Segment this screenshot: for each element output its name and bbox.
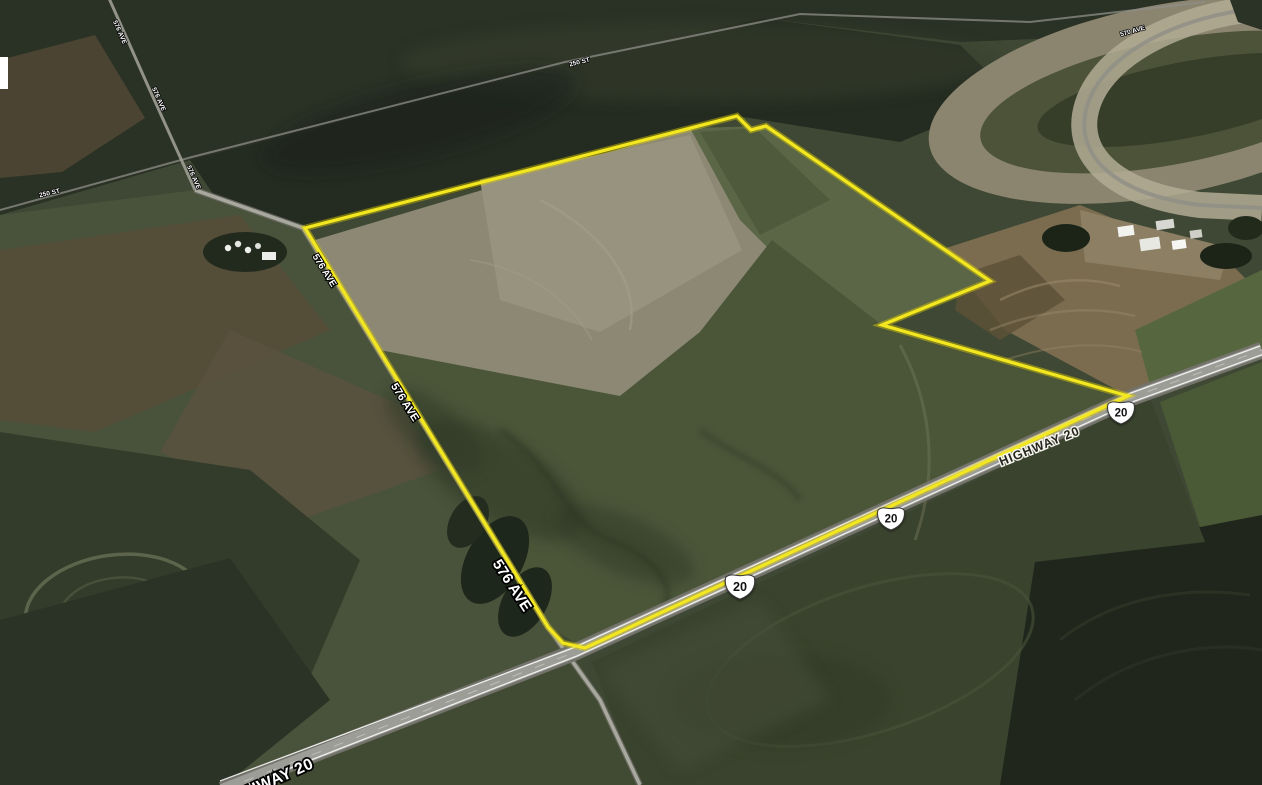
ui-artifacts-layer: [0, 57, 8, 89]
map-svg: 576 AVE576 AVE576 AVE250 ST250 ST570 AVE…: [0, 0, 1262, 785]
white-sliver: [0, 57, 8, 89]
shield-route-number: 20: [885, 514, 898, 526]
grain-bin-farm: [203, 232, 287, 272]
terrain-fields: [0, 0, 1262, 785]
shield-route-number: 20: [733, 580, 747, 594]
shield-route-number: 20: [1115, 408, 1128, 420]
satellite-map-canvas[interactable]: 576 AVE576 AVE576 AVE250 ST250 ST570 AVE…: [0, 0, 1262, 785]
